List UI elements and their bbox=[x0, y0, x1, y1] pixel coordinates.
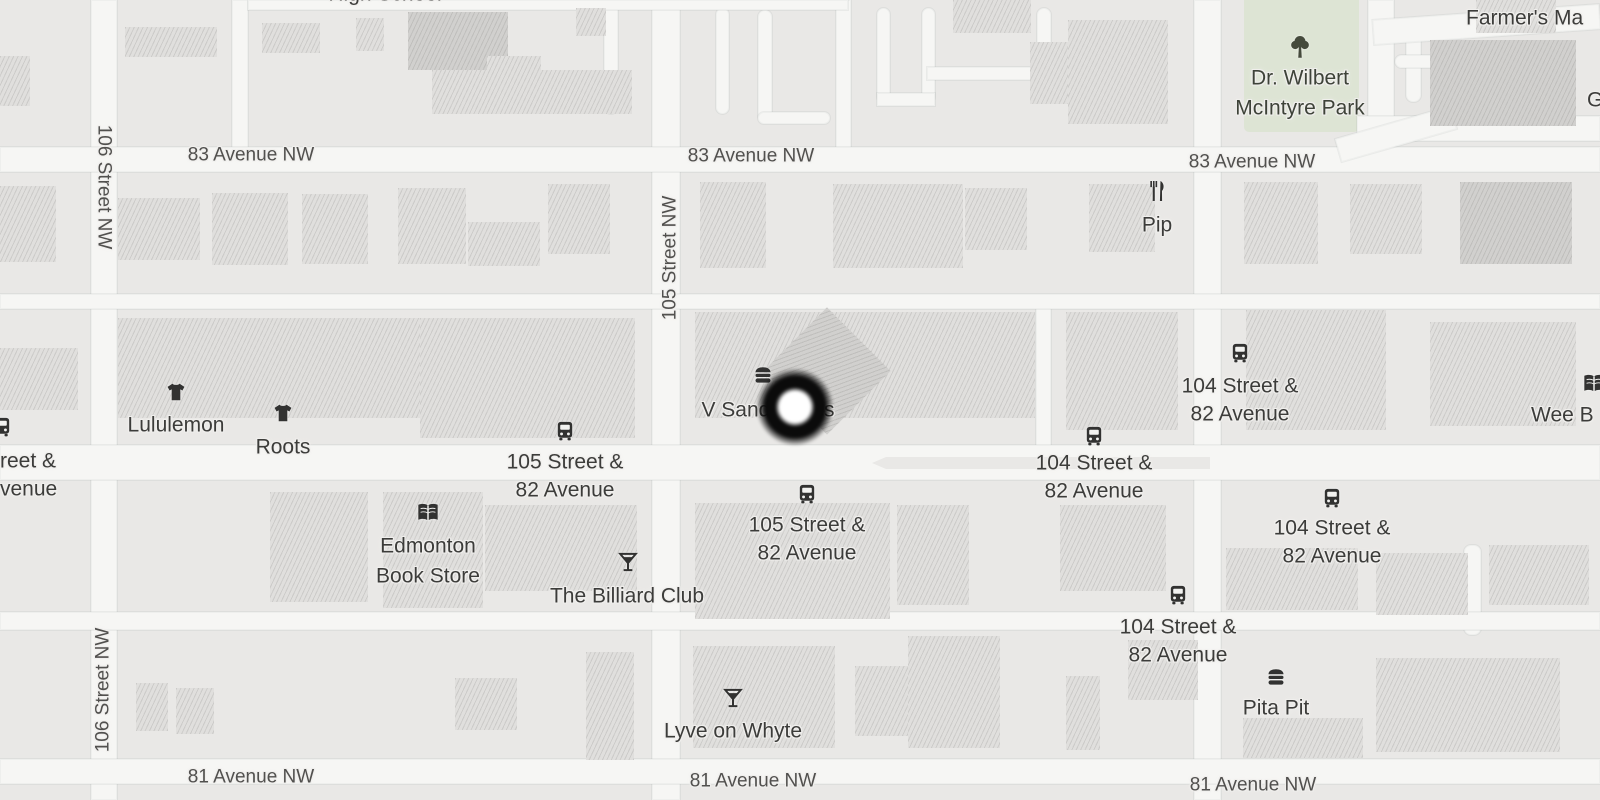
road-segment bbox=[0, 445, 1600, 480]
transit-stop-104-street-82-avenue[interactable]: 104 Street & bbox=[1120, 617, 1237, 638]
transit-stop-104-street-82-avenue[interactable]: 82 Avenue bbox=[1045, 481, 1144, 502]
bus-icon[interactable] bbox=[1167, 584, 1190, 607]
building bbox=[965, 188, 1027, 250]
transit-stop-105-street-82-avenue[interactable]: 82 Avenue bbox=[516, 480, 615, 501]
poi-label-farmers-market[interactable]: Farmer's Ma bbox=[1466, 8, 1583, 29]
map-canvas[interactable]: 83 Avenue NW83 Avenue NW83 Avenue NW81 A… bbox=[0, 0, 1600, 800]
transit-stop-104-street-82-avenue[interactable]: 82 Avenue bbox=[1283, 546, 1382, 567]
road-segment bbox=[836, 0, 851, 150]
building bbox=[0, 186, 56, 262]
poi-label-pita-pit[interactable]: Pita Pit bbox=[1243, 698, 1310, 719]
transit-stop-reet-venue[interactable]: venue bbox=[0, 479, 57, 500]
transit-stop-105-street-82-avenue[interactable]: 105 Street & bbox=[749, 515, 866, 536]
poi-label-lyve-on-whyte[interactable]: Lyve on Whyte bbox=[664, 721, 802, 742]
building bbox=[356, 18, 384, 51]
street-label-81-avenue-nw: 81 Avenue NW bbox=[690, 772, 816, 791]
book-icon[interactable] bbox=[415, 500, 442, 527]
building bbox=[908, 636, 1000, 748]
building bbox=[1244, 182, 1318, 264]
road-segment bbox=[652, 0, 680, 800]
building bbox=[700, 182, 766, 268]
building bbox=[125, 27, 217, 57]
bus-icon[interactable] bbox=[0, 416, 14, 439]
building bbox=[1068, 20, 1168, 124]
poi-label-edmonton-book-store[interactable]: Book Store bbox=[376, 566, 480, 587]
park-label-dr-wilbert-mcintyre-park[interactable]: Dr. Wilbert bbox=[1251, 68, 1349, 89]
click-indicator bbox=[752, 364, 838, 450]
road-segment bbox=[927, 67, 1039, 80]
building bbox=[897, 505, 969, 605]
shirt-icon[interactable] bbox=[165, 381, 188, 404]
road-segment bbox=[1194, 0, 1221, 800]
road-segment bbox=[232, 0, 248, 158]
transit-stop-104-street-82-avenue[interactable]: 104 Street & bbox=[1182, 376, 1299, 397]
book-icon[interactable] bbox=[1581, 371, 1600, 398]
building bbox=[1376, 658, 1560, 752]
building bbox=[398, 188, 466, 264]
road-segment bbox=[716, 8, 729, 114]
transit-stop-105-street-82-avenue[interactable]: 105 Street & bbox=[507, 452, 624, 473]
bus-icon[interactable] bbox=[796, 483, 819, 506]
building bbox=[485, 505, 637, 591]
building bbox=[1489, 545, 1589, 605]
sandwich-icon[interactable] bbox=[1264, 665, 1288, 689]
building bbox=[212, 193, 288, 265]
road-segment bbox=[877, 93, 935, 106]
street-label-81-avenue-nw: 81 Avenue NW bbox=[1190, 776, 1316, 795]
building bbox=[1350, 184, 1422, 254]
poi-label-the-billiard-club[interactable]: The Billiard Club bbox=[550, 586, 704, 607]
street-label-106-street-nw: 106 Street NW bbox=[95, 125, 114, 250]
road-segment bbox=[922, 8, 935, 103]
building bbox=[1060, 505, 1166, 591]
bus-icon[interactable] bbox=[1083, 425, 1106, 448]
street-label-81-avenue-nw: 81 Avenue NW bbox=[188, 768, 314, 787]
street-label-106-street-nw: 106 Street NW bbox=[94, 628, 113, 753]
cocktail-icon[interactable] bbox=[616, 550, 641, 575]
transit-stop-104-street-82-avenue[interactable]: 82 Avenue bbox=[1129, 645, 1228, 666]
building bbox=[1243, 718, 1363, 758]
street-label-83-avenue-nw: 83 Avenue NW bbox=[688, 147, 814, 166]
poi-label-lululemon[interactable]: Lululemon bbox=[128, 415, 225, 436]
transit-stop-104-street-82-avenue[interactable]: 104 Street & bbox=[1036, 453, 1153, 474]
building bbox=[420, 318, 635, 438]
building bbox=[262, 23, 320, 53]
tree-icon bbox=[1285, 32, 1315, 62]
road-segment bbox=[1036, 300, 1051, 450]
building bbox=[1066, 676, 1100, 750]
street-label-83-avenue-nw: 83 Avenue NW bbox=[1189, 153, 1315, 172]
street-label-83-avenue-nw: 83 Avenue NW bbox=[188, 146, 314, 165]
building bbox=[953, 0, 1031, 33]
building bbox=[468, 222, 540, 266]
building bbox=[487, 56, 541, 114]
poi-label-g[interactable]: G bbox=[1587, 90, 1600, 111]
cocktail-icon[interactable] bbox=[721, 686, 746, 711]
building bbox=[136, 683, 168, 731]
transit-stop-104-street-82-avenue[interactable]: 82 Avenue bbox=[1191, 404, 1290, 425]
street-label-105-street-nw: 105 Street NW bbox=[661, 196, 680, 321]
poi-label-roots[interactable]: Roots bbox=[256, 437, 311, 458]
park-label-dr-wilbert-mcintyre-park[interactable]: McIntyre Park bbox=[1235, 98, 1365, 119]
shirt-icon[interactable] bbox=[272, 402, 295, 425]
road-segment bbox=[877, 8, 890, 103]
building bbox=[302, 194, 368, 264]
building bbox=[176, 688, 214, 734]
bus-icon[interactable] bbox=[1229, 342, 1252, 365]
building bbox=[118, 198, 200, 260]
poi-label-high-school[interactable]: High School bbox=[328, 0, 441, 5]
road-segment bbox=[0, 294, 1600, 309]
restaurant-icon[interactable] bbox=[1144, 178, 1170, 204]
building bbox=[576, 8, 606, 36]
poi-label-wee-book[interactable]: Wee B bbox=[1531, 405, 1594, 426]
building bbox=[586, 652, 634, 760]
bus-icon[interactable] bbox=[1321, 487, 1344, 510]
poi-label-pip[interactable]: Pip bbox=[1142, 215, 1172, 236]
road-segment bbox=[758, 10, 772, 122]
building bbox=[833, 184, 963, 268]
building bbox=[1376, 553, 1468, 615]
transit-stop-reet-venue[interactable]: reet & bbox=[0, 451, 56, 472]
bus-icon[interactable] bbox=[554, 420, 577, 443]
building bbox=[1430, 40, 1576, 126]
road-segment bbox=[758, 112, 830, 124]
building bbox=[1460, 182, 1572, 264]
transit-stop-105-street-82-avenue[interactable]: 82 Avenue bbox=[758, 543, 857, 564]
building bbox=[548, 184, 610, 254]
building bbox=[270, 492, 368, 602]
building bbox=[0, 56, 30, 106]
building bbox=[0, 348, 78, 410]
transit-stop-104-street-82-avenue[interactable]: 104 Street & bbox=[1274, 518, 1391, 539]
building bbox=[1066, 312, 1178, 430]
building bbox=[455, 678, 517, 730]
poi-label-edmonton-book-store[interactable]: Edmonton bbox=[380, 536, 476, 557]
